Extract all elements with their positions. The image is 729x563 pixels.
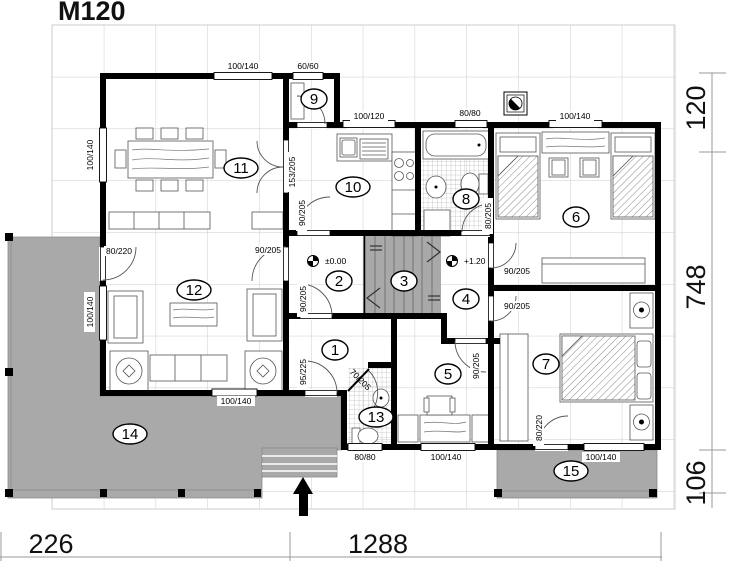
svg-text:11: 11 bbox=[233, 160, 249, 177]
nightstand-lamp bbox=[630, 293, 653, 328]
armchair bbox=[108, 291, 143, 343]
single-bed bbox=[611, 133, 655, 219]
room-label-13: 13 bbox=[359, 407, 393, 427]
room-label-7: 7 bbox=[533, 354, 559, 374]
svg-text:12: 12 bbox=[186, 282, 203, 299]
room-label-11: 11 bbox=[224, 158, 258, 178]
door-size-label: 90/205 bbox=[297, 281, 308, 317]
door-size-label: 95/225 bbox=[297, 354, 308, 390]
room-label-12: 12 bbox=[177, 280, 211, 300]
svg-text:13: 13 bbox=[368, 409, 385, 426]
svg-text:±0.00: ±0.00 bbox=[325, 256, 346, 266]
single-bed bbox=[496, 133, 540, 219]
svg-text:80/220: 80/220 bbox=[106, 246, 132, 256]
sofa bbox=[150, 355, 227, 381]
svg-text:100/140: 100/140 bbox=[221, 396, 252, 406]
svg-text:80/220: 80/220 bbox=[534, 415, 544, 441]
svg-text:+1.20: +1.20 bbox=[464, 256, 486, 266]
svg-text:100/140: 100/140 bbox=[586, 452, 617, 462]
svg-text:10: 10 bbox=[345, 179, 362, 196]
office-chair bbox=[424, 396, 455, 415]
svg-text:80/205: 80/205 bbox=[483, 203, 493, 229]
door-size-label: 90/205 bbox=[502, 266, 532, 276]
low-cabinet bbox=[542, 258, 645, 283]
kitchen-sink bbox=[340, 138, 357, 157]
svg-text:4: 4 bbox=[462, 291, 470, 308]
room-label-10: 10 bbox=[336, 177, 370, 197]
svg-text:90/205: 90/205 bbox=[255, 245, 281, 255]
wardrobe bbox=[500, 334, 528, 441]
room-label-6: 6 bbox=[563, 207, 589, 227]
work-desk bbox=[420, 415, 470, 442]
window-size-label: 100/140 bbox=[224, 61, 262, 71]
plan-title: M120 bbox=[58, 0, 126, 26]
desk-chair bbox=[580, 158, 599, 177]
entrance-steps bbox=[262, 448, 337, 477]
coffee-table bbox=[170, 303, 217, 326]
window-size-label: 100/120 bbox=[350, 111, 388, 121]
window-size-label: 100/140 bbox=[217, 396, 255, 406]
wc-toilet bbox=[352, 428, 378, 444]
room-label-3: 3 bbox=[391, 271, 417, 291]
svg-text:100/140: 100/140 bbox=[228, 61, 259, 71]
door-size-label: 90/205 bbox=[470, 348, 481, 384]
sideboard bbox=[109, 212, 283, 229]
window-size-label: 100/140 bbox=[556, 111, 594, 121]
window-size-label: 100/140 bbox=[84, 135, 95, 175]
door-size-label: 80/220 bbox=[104, 246, 134, 256]
svg-text:100/120: 100/120 bbox=[354, 111, 385, 121]
dim-bottom-terrace: 226 bbox=[28, 529, 73, 559]
room-label-9: 9 bbox=[301, 89, 327, 109]
dim-bottom-house: 1288 bbox=[348, 529, 408, 559]
room-label-4: 4 bbox=[453, 289, 479, 309]
svg-text:100/140: 100/140 bbox=[431, 452, 462, 462]
window-size-label: 80/80 bbox=[351, 452, 379, 462]
svg-text:8: 8 bbox=[462, 191, 470, 208]
window-size-label: 60/60 bbox=[294, 61, 322, 71]
desk-chair bbox=[549, 158, 568, 177]
room-label-15: 15 bbox=[554, 461, 588, 481]
door-size-label: 90/205 bbox=[296, 195, 307, 231]
window-size-label: 100/140 bbox=[427, 452, 465, 462]
svg-text:80/80: 80/80 bbox=[354, 452, 376, 462]
svg-text:15: 15 bbox=[563, 463, 580, 480]
svg-text:2: 2 bbox=[335, 273, 343, 290]
dim-right-middle: 748 bbox=[681, 264, 711, 309]
svg-text:100/140: 100/140 bbox=[85, 139, 95, 170]
cabinet bbox=[398, 415, 418, 442]
armchair bbox=[247, 289, 282, 341]
svg-text:9: 9 bbox=[310, 91, 318, 108]
room-label-5: 5 bbox=[435, 364, 461, 384]
svg-text:90/205: 90/205 bbox=[297, 200, 307, 226]
dish-rack bbox=[360, 139, 388, 159]
door-size-label: 90/205 bbox=[253, 245, 283, 255]
svg-text:100/140: 100/140 bbox=[560, 111, 591, 121]
svg-text:90/205: 90/205 bbox=[504, 266, 530, 276]
round-chair bbox=[245, 351, 282, 391]
door-size-label: 90/205 bbox=[502, 301, 532, 311]
floor-plan-drawing: 1 2 3 4 5 6 7 8 9 10 11 12 13 14 15 ±0.0… bbox=[0, 0, 729, 563]
svg-text:3: 3 bbox=[400, 273, 408, 290]
svg-text:1: 1 bbox=[331, 342, 339, 359]
svg-text:5: 5 bbox=[444, 366, 452, 383]
svg-text:90/205: 90/205 bbox=[471, 353, 481, 379]
window-size-label: 100/140 bbox=[582, 452, 620, 462]
svg-text:90/205: 90/205 bbox=[298, 286, 308, 312]
nightstand-lamp bbox=[630, 405, 653, 440]
window-size-label: 100/140 bbox=[84, 292, 95, 332]
svg-text:95/225: 95/225 bbox=[298, 359, 308, 385]
room-label-8: 8 bbox=[453, 189, 479, 209]
chimney-icon bbox=[504, 92, 527, 115]
door-size-label: 80/220 bbox=[533, 410, 544, 446]
desk bbox=[542, 132, 609, 153]
svg-text:90/205: 90/205 bbox=[504, 301, 530, 311]
round-chair bbox=[110, 351, 148, 391]
double-bed bbox=[560, 334, 653, 402]
svg-text:153/205: 153/205 bbox=[287, 156, 297, 187]
room-label-1: 1 bbox=[322, 340, 348, 360]
floor-plan-page: 1 2 3 4 5 6 7 8 9 10 11 12 13 14 15 ±0.0… bbox=[0, 0, 729, 563]
svg-text:100/140: 100/140 bbox=[85, 296, 95, 327]
svg-text:80/80: 80/80 bbox=[459, 108, 481, 118]
svg-text:14: 14 bbox=[122, 426, 139, 443]
elevation-marker-ground: ±0.00 bbox=[308, 256, 347, 267]
dim-right-bottom: 106 bbox=[681, 460, 711, 505]
room-label-2: 2 bbox=[326, 271, 352, 291]
elevation-marker-upper: +1.20 bbox=[447, 256, 486, 267]
room-label-14: 14 bbox=[113, 424, 147, 444]
bathtub bbox=[423, 131, 489, 159]
window-size-label: 80/80 bbox=[456, 108, 484, 118]
bathroom-sink bbox=[426, 176, 446, 198]
door-size-label: 153/205 bbox=[286, 152, 297, 192]
dim-right-top: 120 bbox=[681, 85, 711, 130]
svg-text:60/60: 60/60 bbox=[297, 61, 319, 71]
svg-text:6: 6 bbox=[572, 209, 580, 226]
svg-text:7: 7 bbox=[542, 356, 550, 373]
door-size-label: 80/205 bbox=[482, 198, 493, 234]
